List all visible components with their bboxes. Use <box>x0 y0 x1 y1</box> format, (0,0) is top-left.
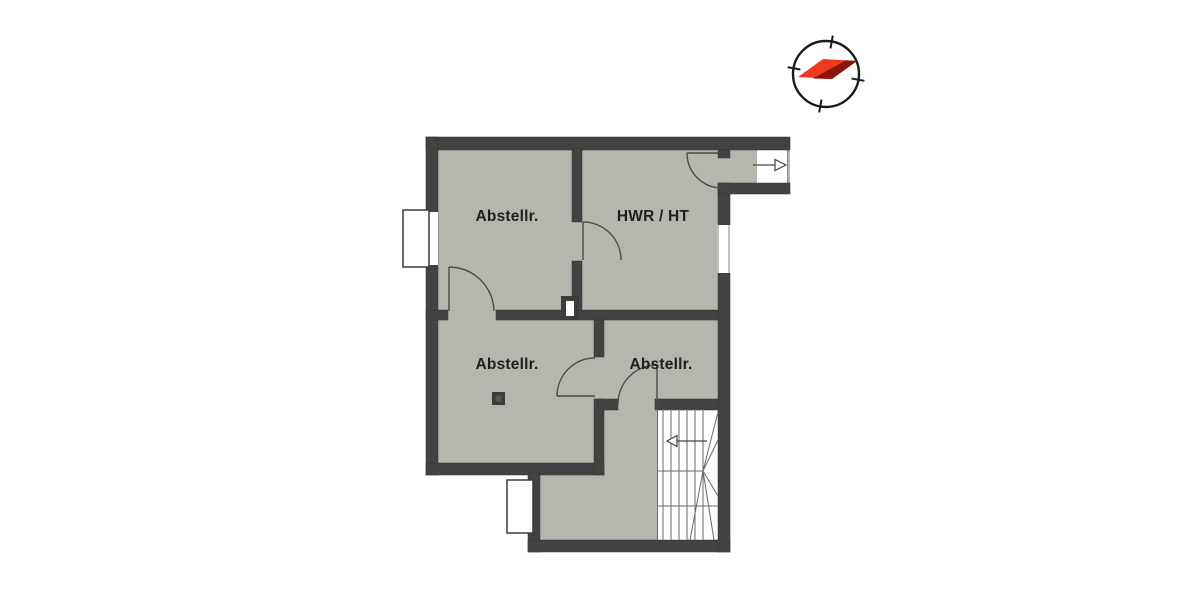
room-label-storage-top-left: Abstellr. <box>476 208 539 225</box>
window-right <box>717 225 731 273</box>
room-label-utility: HWR / HT <box>617 208 690 225</box>
room-label-storage-mid-right: Abstellr. <box>630 356 693 373</box>
floorplan-canvas: Abstellr. HWR / HT Abstellr. Abstellr. <box>0 0 1200 600</box>
floor-area <box>426 137 790 552</box>
floorplan-drawing: Abstellr. HWR / HT Abstellr. Abstellr. <box>0 0 1200 600</box>
window-bottom-frame <box>507 480 533 533</box>
shaft-symbol <box>561 296 579 320</box>
column-symbol <box>492 392 505 405</box>
room-label-storage-mid-left: Abstellr. <box>476 356 539 373</box>
window-left-frame <box>403 210 429 267</box>
compass-icon <box>788 36 865 113</box>
